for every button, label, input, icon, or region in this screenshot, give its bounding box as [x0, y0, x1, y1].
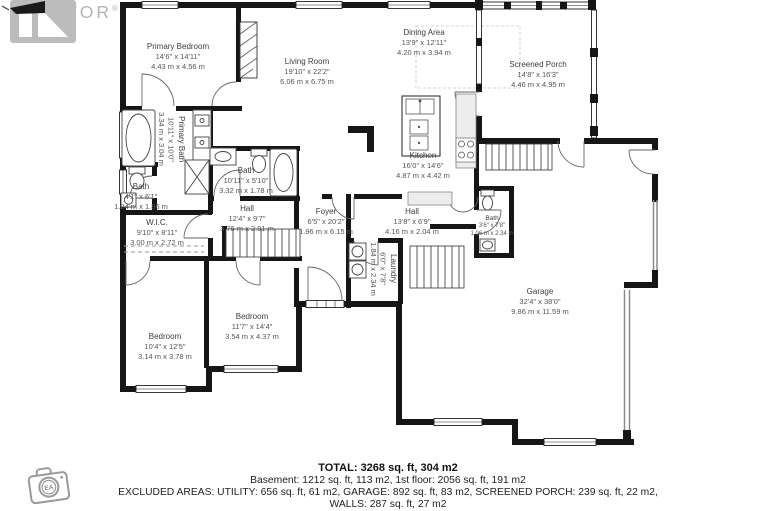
room-label-hall-west: Hall 12'4" x 9'7" 3.76 m x 2.91 m	[220, 204, 274, 234]
area-summary: TOTAL: 3268 sq. ft, 304 m2 Basement: 121…	[48, 462, 728, 511]
room-label-primary-bath: Primary Bath 10'11" x 10'0" 3.34 m x 3.0…	[156, 112, 186, 166]
summary-excluded: EXCLUDED AREAS: UTILITY: 656 sq. ft, 61 …	[48, 487, 728, 499]
hatched-block	[240, 22, 257, 78]
kitchen-island	[402, 96, 440, 156]
room-label-hall-east: Hall 13'8" x 6'9" 4.16 m x 2.04 m	[385, 207, 439, 237]
room-label-bath-main: Bath 10'11" x 5'10" 3.32 m x 1.78 m	[219, 166, 273, 196]
registered-symbol: ®	[112, 4, 118, 13]
room-label-bedroom-mid: Bedroom 11'7" x 14'4" 3.54 m x 4.37 m	[225, 312, 279, 342]
stairs-garage-entry	[410, 246, 464, 288]
garage-door-lines	[625, 200, 658, 430]
summary-total: TOTAL: 3268 sq. ft, 304 m2	[48, 462, 728, 475]
room-label-bedroom-left: Bedroom 10'4" x 12'5" 3.14 m x 3.78 m	[138, 332, 192, 362]
floorplan-canvas: Primary Bedroom 14'6" x 14'11" 4.43 m x …	[0, 0, 767, 511]
room-label-laundry: Laundry 6'0" x 7'8" 1.84 m x 2.34 m	[368, 242, 398, 296]
stairs-basement	[486, 144, 552, 170]
room-label-living-room: Living Room 19'10" x 22'2" 6.06 m x 6.75…	[280, 57, 334, 87]
room-label-garage: Garage 32'4" x 38'0" 9.86 m x 11.59 m	[511, 287, 568, 317]
floorplan-drawing	[0, 0, 767, 458]
room-label-dining-area: Dining Area 13'9" x 12'11" 4.20 m x 3.94…	[397, 28, 451, 58]
room-label-bath-small: Bath 4'1" x 6'1" 1.24 m x 1.86 m	[114, 182, 168, 212]
room-label-wic: W.I.C. 9'10" x 8'11" 3.00 m x 2.72 m	[130, 218, 184, 248]
camera-initials: EA	[44, 484, 54, 492]
corner-logo-mark	[0, 0, 46, 16]
room-label-foyer: Foyer 6'5" x 20'2" 1.96 m x 6.15 m	[299, 207, 353, 237]
room-label-screened-porch: Screened Porch 14'8" x 16'3" 4.46 m x 4.…	[509, 60, 566, 90]
summary-walls: WALLS: 287 sq. ft, 27 m2	[48, 499, 728, 511]
room-label-primary-bedroom: Primary Bedroom 14'6" x 14'11" 4.43 m x …	[147, 42, 209, 72]
room-label-bath3: Bath 3'6" x 7'8" 1.06 m x 2.34 m	[470, 215, 513, 239]
camera-icon: EA	[24, 460, 76, 510]
summary-floors: Basement: 1212 sq. ft, 113 m2, 1st floor…	[48, 475, 728, 487]
room-label-kitchen: Kitchen 16'0" x 14'6" 4.87 m x 4.42 m	[396, 151, 450, 181]
